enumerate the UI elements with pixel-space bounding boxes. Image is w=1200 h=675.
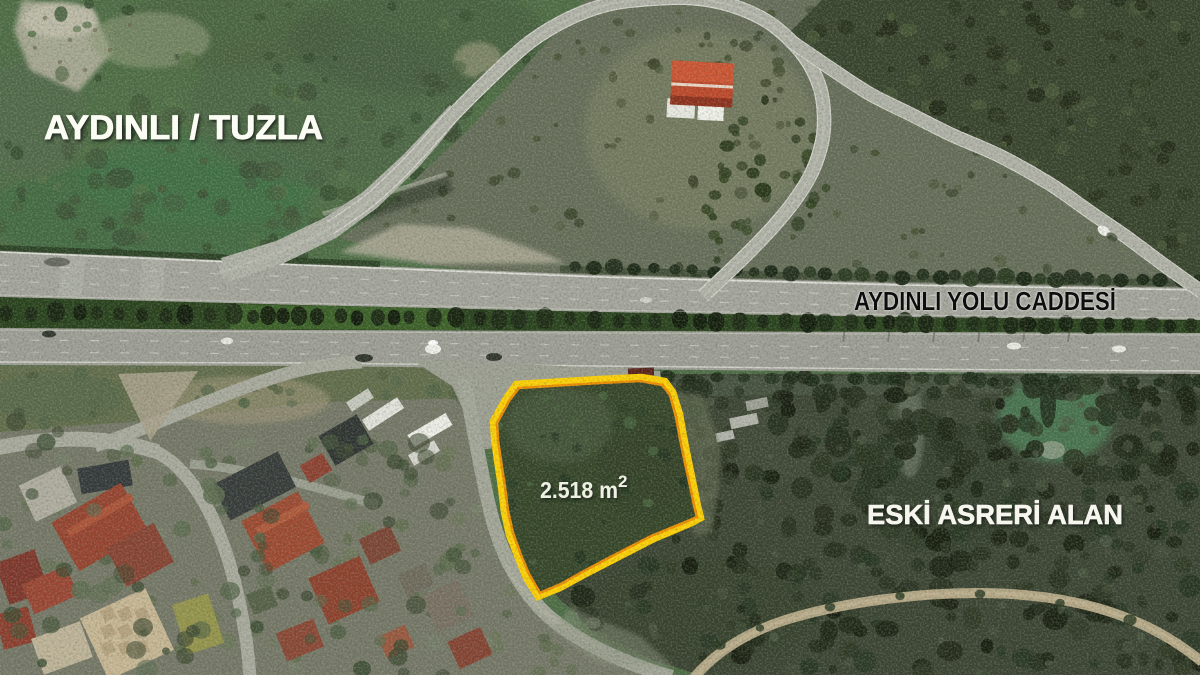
svg-text:ESKİ ASRERİ ALAN: ESKİ ASRERİ ALAN [867,499,1123,530]
svg-text:2.518 m: 2.518 m [540,477,618,503]
svg-text:2: 2 [618,472,627,491]
svg-text:AYDINLI / TUZLA: AYDINLI / TUZLA [44,109,323,147]
svg-text:AYDINLI YOLU CADDESİ: AYDINLI YOLU CADDESİ [854,286,1116,316]
